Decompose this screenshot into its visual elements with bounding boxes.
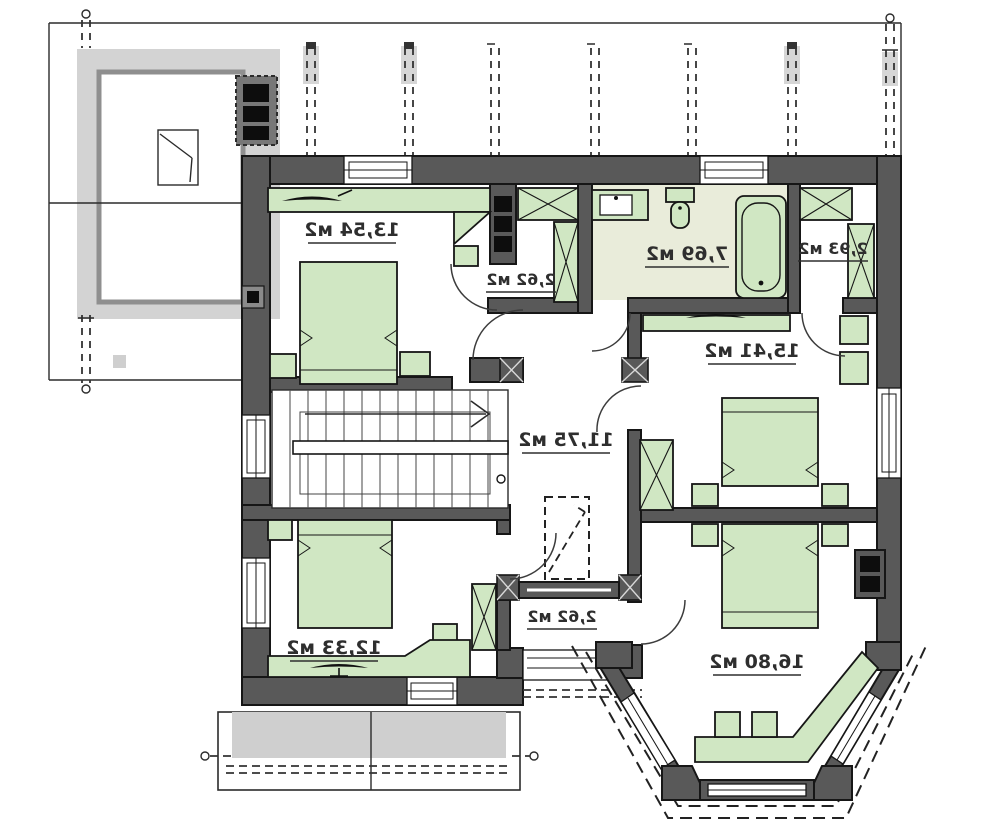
bathroom-east-wall [788, 184, 800, 313]
label-wardrobe-top: 2,62 м2 [486, 270, 555, 289]
label-bathroom: 7,69 м2 [646, 243, 728, 265]
tv-dresser [643, 315, 790, 331]
nightstand [692, 484, 718, 506]
floor-plan-canvas: 13,54 м2 2,62 м2 7,69 м2 2,93 м2 15,41 м… [0, 0, 1000, 822]
counter-angle [454, 212, 490, 244]
downpipe-caps [306, 42, 797, 49]
door-lobby [473, 310, 523, 360]
porch-roof [201, 712, 538, 790]
bed-2 [722, 398, 818, 486]
floor-plan-drawing: 13,54 м2 2,62 м2 7,69 м2 2,93 м2 15,41 м… [0, 0, 1000, 822]
window-west-bedroom3 [242, 558, 270, 628]
door-bedroom-right [597, 386, 641, 432]
label-bedroom-bay: 16,80 м2 [709, 651, 804, 673]
window-north-2 [700, 156, 768, 184]
wall-north [242, 156, 901, 184]
label-bedroom-bottom-left: 12,33 м2 [286, 637, 381, 659]
door-bedroom-bottom-left [510, 533, 556, 579]
bedrooms-divider-wall [641, 508, 877, 522]
nightstand [822, 484, 848, 506]
door-bedroom-bay [641, 600, 685, 644]
bedroom3-east-wall-b [497, 600, 510, 650]
nightstand [270, 354, 296, 378]
nightstand [822, 524, 848, 546]
bed-3 [298, 520, 392, 628]
structural-posts [497, 358, 648, 600]
cabinet [454, 246, 478, 266]
roof-marker [113, 355, 126, 368]
bathtub-icon [736, 196, 786, 298]
chair [715, 712, 740, 737]
stair-handrail [293, 441, 508, 454]
wardrobe-counter [268, 188, 490, 212]
nightstand [400, 352, 430, 376]
staircase [272, 390, 508, 508]
wall-south [242, 677, 523, 705]
bedroom3-east-wall-a [497, 520, 510, 534]
dresser [840, 316, 868, 344]
washbasin-icon [592, 190, 648, 220]
bed-1 [300, 262, 397, 384]
label-balcony: 2,62 м2 [527, 607, 596, 626]
label-hall: 11,75 м2 [518, 429, 613, 451]
chimney-icon [236, 76, 277, 145]
door-bathroom [592, 313, 630, 351]
wall-vent [242, 286, 264, 308]
window-west-stairs [242, 415, 270, 478]
dresser [840, 352, 868, 384]
window-south-bedroom3 [407, 677, 457, 705]
label-bedroom-top-left: 13,54 м2 [304, 219, 399, 241]
chair [752, 712, 777, 737]
flue-block [855, 550, 885, 598]
bathroom-south-wall [628, 298, 800, 313]
nightstand [268, 520, 292, 540]
label-wardrobe-right: 2,93 м2 [798, 239, 867, 258]
hall-dashed-cabinet [545, 497, 589, 579]
garage-roof-opening [99, 72, 243, 302]
window-east-bedroom2 [877, 388, 901, 478]
window-north-1 [344, 156, 412, 184]
stair-newel [497, 475, 505, 483]
label-bedroom-right: 15,41 м2 [704, 340, 799, 362]
balcony-corner-left [497, 648, 523, 678]
wardrobe-right-south-wall [843, 298, 877, 313]
door-wardrobe-right [802, 313, 845, 356]
nightstand [692, 524, 718, 546]
bathroom-west-wall [578, 184, 592, 313]
bay-post-top-left [596, 642, 632, 668]
